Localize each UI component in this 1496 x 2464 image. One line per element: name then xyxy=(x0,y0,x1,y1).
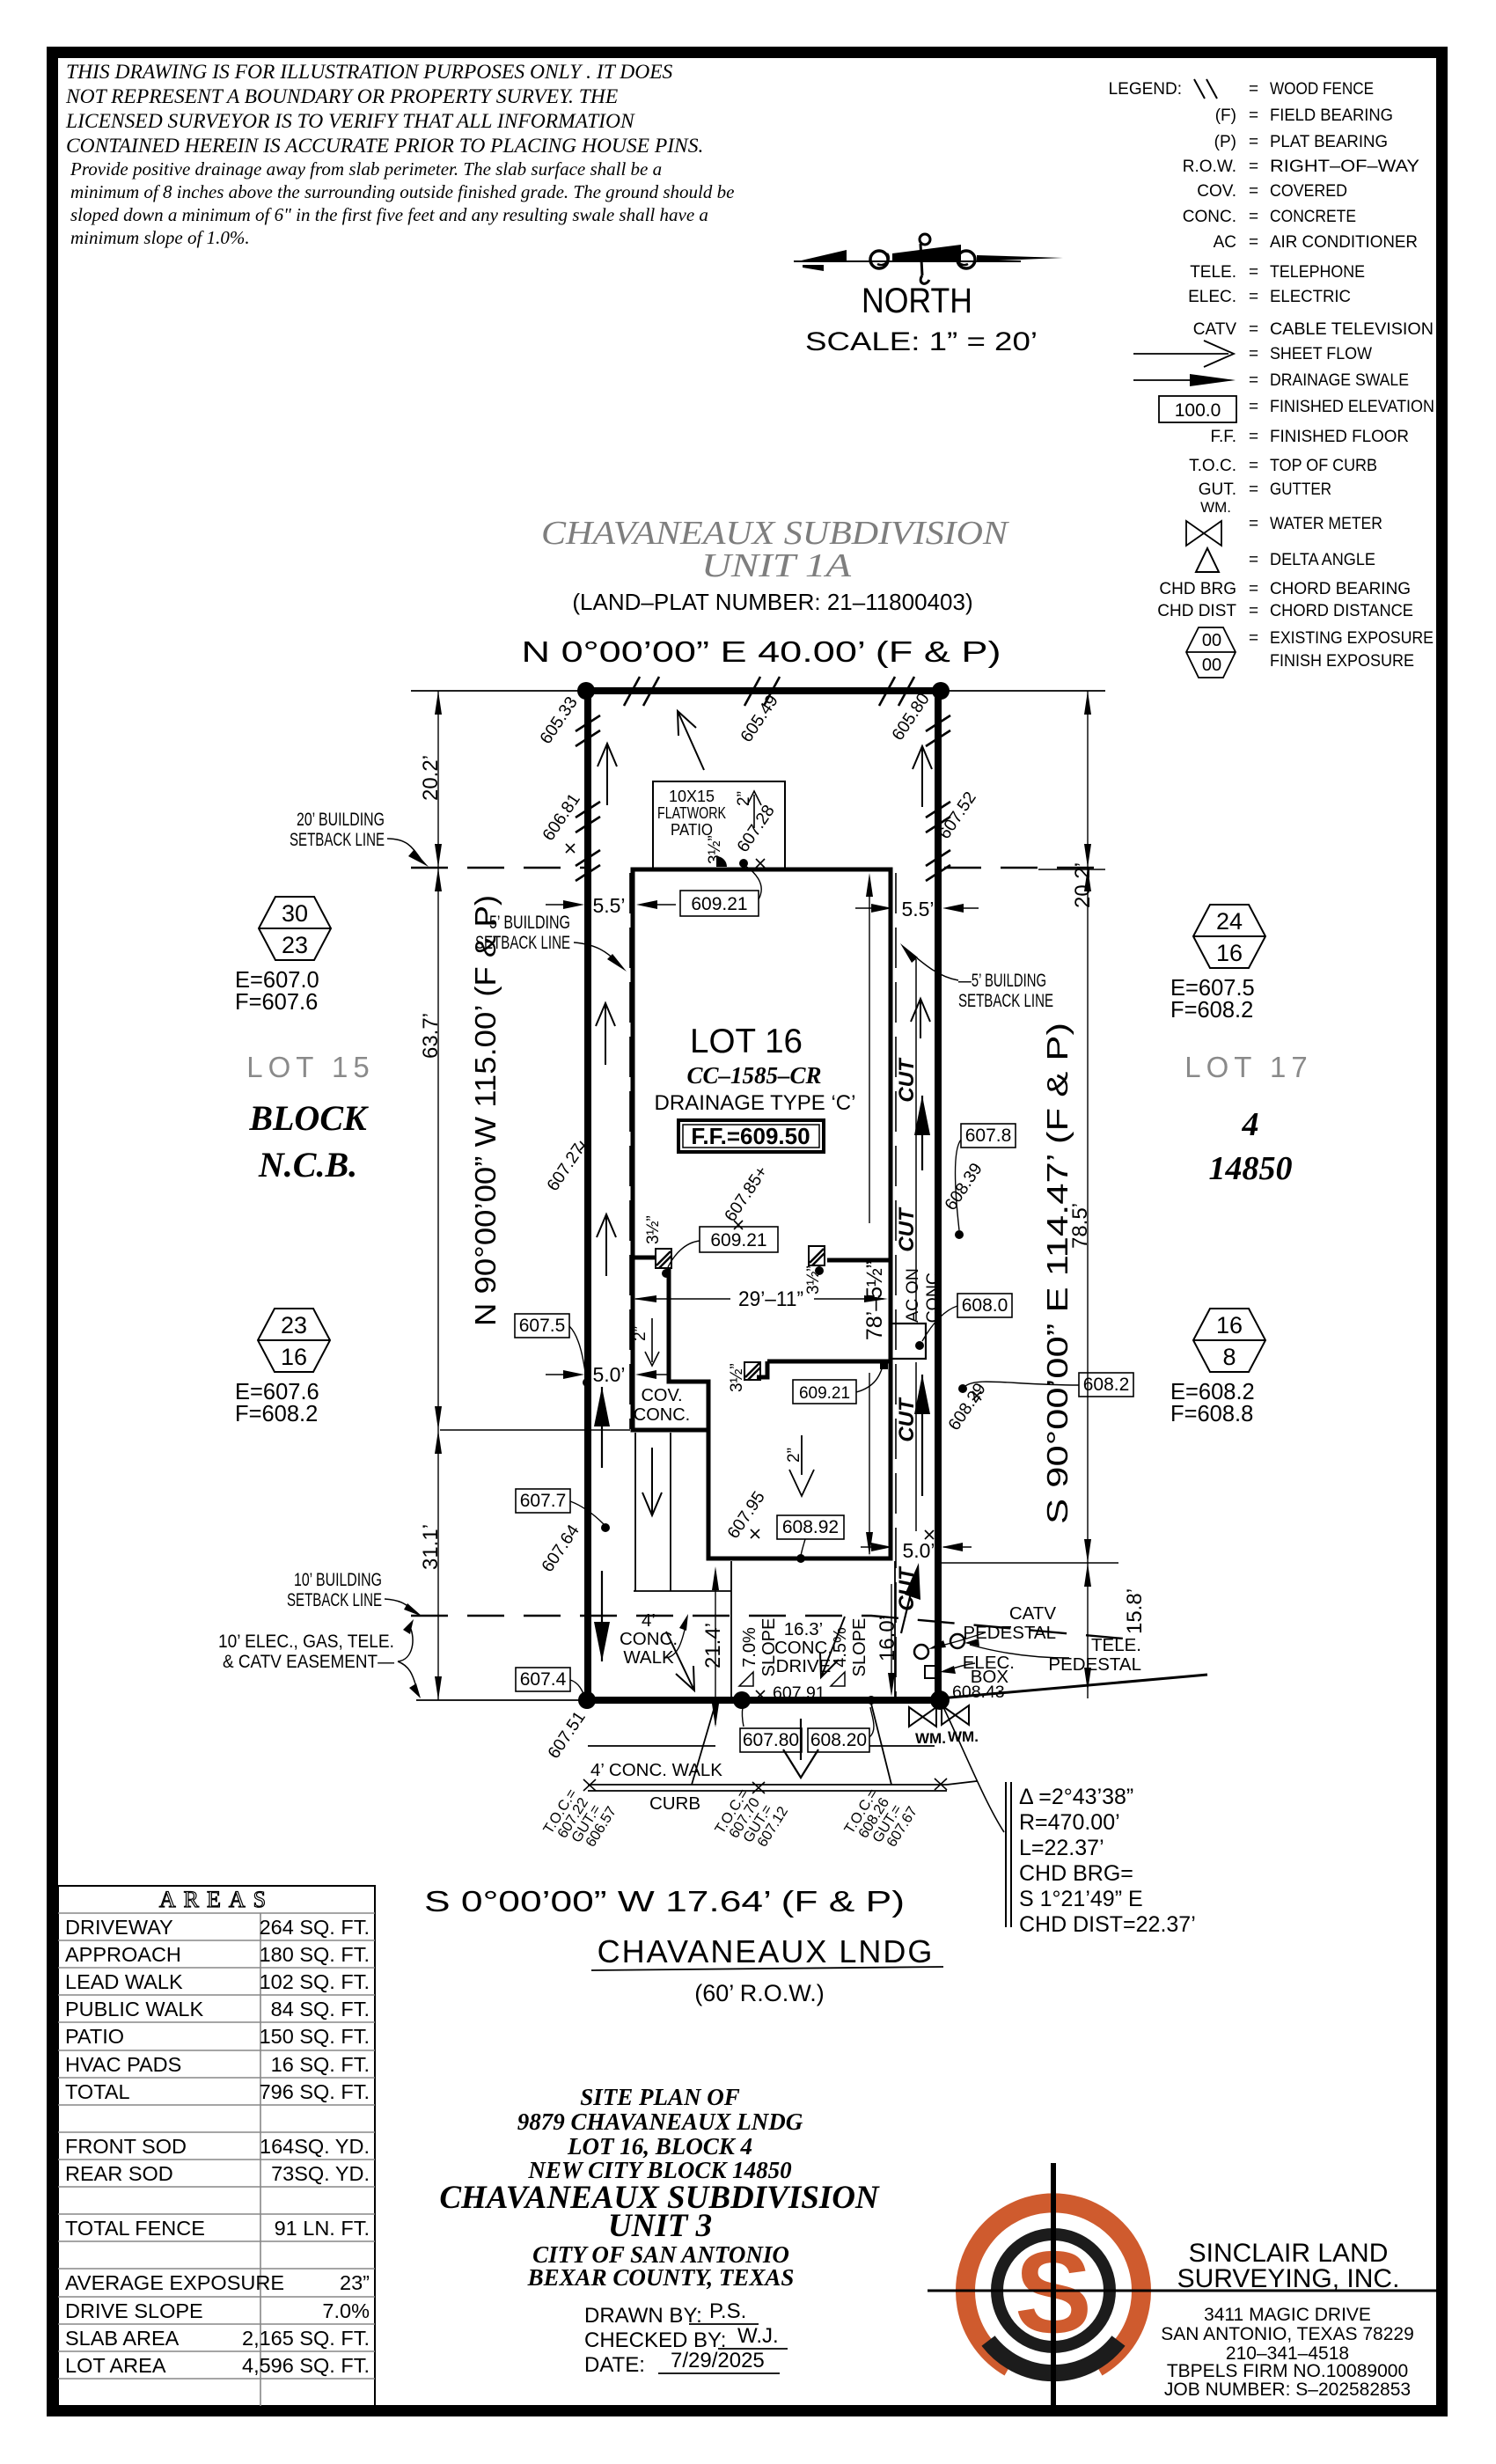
svg-text:=: = xyxy=(1249,580,1258,598)
svg-text:SLOPE: SLOPE xyxy=(850,1618,869,1677)
svg-text:84 SQ. FT.: 84 SQ. FT. xyxy=(271,1998,370,2020)
svg-text:CONC.: CONC. xyxy=(923,1268,942,1324)
svg-text:N 90°00’00” W 115.00’ (F &: N 90°00’00” W 115.00’ (F & P) xyxy=(469,895,502,1326)
svg-text:10X15: 10X15 xyxy=(669,788,715,805)
svg-text:8: 8 xyxy=(1222,1344,1236,1370)
svg-text:sloped down a minimum of 6" in: sloped down a minimum of 6" in the first… xyxy=(70,204,708,225)
svg-text:CABLE TELEVISION: CABLE TELEVISION xyxy=(1270,320,1434,339)
svg-text:CHD BRG: CHD BRG xyxy=(1159,580,1236,598)
svg-text:FLATWORK: FLATWORK xyxy=(657,804,726,822)
svg-text:CONC.: CONC. xyxy=(1183,208,1236,226)
svg-text:23”: 23” xyxy=(340,2271,370,2294)
svg-text:REAR SOD: REAR SOD xyxy=(65,2162,173,2185)
svg-text:PLAT BEARING: PLAT BEARING xyxy=(1270,133,1388,151)
svg-text:=: = xyxy=(1249,158,1258,176)
svg-text:WOOD FENCE: WOOD FENCE xyxy=(1270,80,1374,99)
svg-text:=: = xyxy=(1249,428,1258,446)
svg-text:LEAD WALK: LEAD WALK xyxy=(65,1970,183,1993)
svg-text:DATE:: DATE: xyxy=(584,2353,645,2377)
svg-text:16: 16 xyxy=(1216,940,1243,966)
svg-text:4’: 4’ xyxy=(642,1610,656,1631)
svg-text:LOT 15: LOT 15 xyxy=(246,1051,374,1083)
svg-text:30: 30 xyxy=(282,900,308,927)
svg-text:5.0’: 5.0’ xyxy=(592,1363,625,1386)
svg-text:N.C.B.: N.C.B. xyxy=(258,1145,357,1184)
svg-text:2”: 2” xyxy=(631,1326,649,1341)
svg-text:SETBACK LINE: SETBACK LINE xyxy=(290,829,385,850)
svg-text:Δ =2°43’38”: Δ =2°43’38” xyxy=(1019,1785,1133,1809)
svg-text:DRAINAGE SWALE: DRAINAGE SWALE xyxy=(1270,371,1409,390)
svg-text:150 SQ. FT.: 150 SQ. FT. xyxy=(260,2025,370,2048)
svg-text:CHAVANEAUX SUBDIVISION: CHAVANEAUX SUBDIVISION xyxy=(541,515,1010,552)
svg-text:F=608.8: F=608.8 xyxy=(1170,1402,1253,1426)
svg-text:=: = xyxy=(1249,263,1258,282)
svg-text:TELE.: TELE. xyxy=(1091,1635,1141,1655)
svg-text:LOT 17: LOT 17 xyxy=(1184,1051,1312,1083)
svg-text:T.O.C.: T.O.C. xyxy=(1189,457,1236,475)
svg-text:F=608.2: F=608.2 xyxy=(1170,998,1253,1023)
svg-text:UNIT 1A: UNIT 1A xyxy=(701,547,852,584)
svg-text:15.8’: 15.8’ xyxy=(1123,1588,1147,1634)
svg-text:DELTA ANGLE: DELTA ANGLE xyxy=(1270,551,1375,569)
svg-text:=: = xyxy=(1249,371,1258,390)
svg-text:BOX: BOX xyxy=(971,1667,1009,1687)
svg-text:3½”: 3½” xyxy=(644,1215,663,1244)
svg-text:DRIVEWAY: DRIVEWAY xyxy=(65,1916,173,1939)
svg-text:16: 16 xyxy=(281,1344,307,1370)
svg-text:GUTTER: GUTTER xyxy=(1270,480,1331,499)
svg-text:R=470.00’: R=470.00’ xyxy=(1019,1810,1120,1835)
svg-text:CATV: CATV xyxy=(1193,320,1237,339)
svg-text:CONC.: CONC. xyxy=(620,1629,678,1649)
svg-text:SURVEYING, INC.: SURVEYING, INC. xyxy=(1177,2264,1400,2293)
svg-text:607.4: 607.4 xyxy=(520,1669,567,1690)
svg-text:UNIT 3: UNIT 3 xyxy=(608,2208,712,2244)
svg-text:COV.: COV. xyxy=(1197,182,1236,201)
svg-text:608.20: 608.20 xyxy=(810,1730,867,1750)
svg-text:=: = xyxy=(1249,480,1258,499)
svg-text:100.0: 100.0 xyxy=(1175,400,1221,421)
svg-text:102 SQ. FT.: 102 SQ. FT. xyxy=(260,1970,370,1993)
svg-text:2,165 SQ. FT.: 2,165 SQ. FT. xyxy=(242,2327,370,2350)
svg-text:73SQ. YD.: 73SQ. YD. xyxy=(271,2162,370,2185)
svg-text:W.J.: W.J. xyxy=(737,2324,779,2348)
svg-text:Provide positive drainage away: Provide positive drainage away from slab… xyxy=(70,158,662,180)
svg-text:3411 MAGIC DRIVE: 3411 MAGIC DRIVE xyxy=(1204,2305,1371,2325)
svg-text:LOT 16: LOT 16 xyxy=(690,1023,803,1060)
svg-text:=: = xyxy=(1249,133,1258,151)
svg-text:AC ON: AC ON xyxy=(903,1268,922,1323)
svg-text:5’ BUILDING: 5’ BUILDING xyxy=(489,912,570,933)
svg-text:L=22.37’: L=22.37’ xyxy=(1019,1836,1104,1860)
svg-text:SHEET FLOW: SHEET FLOW xyxy=(1270,345,1372,363)
svg-text:NOT REPRESENT A BOUNDARY OR PR: NOT REPRESENT A BOUNDARY OR PROPERTY SUR… xyxy=(65,85,618,108)
svg-text:F=607.6: F=607.6 xyxy=(235,990,318,1015)
svg-text:AVERAGE EXPOSURE: AVERAGE EXPOSURE xyxy=(65,2271,284,2294)
svg-text:COVERED: COVERED xyxy=(1270,182,1347,201)
svg-text:=: = xyxy=(1249,208,1258,226)
svg-text:16: 16 xyxy=(1216,1312,1243,1338)
svg-text:HVAC PADS: HVAC PADS xyxy=(65,2053,181,2076)
svg-text:ELEC.: ELEC. xyxy=(1188,288,1236,306)
svg-text:CONCRETE: CONCRETE xyxy=(1270,208,1356,226)
svg-text:16 SQ. FT.: 16 SQ. FT. xyxy=(271,2053,370,2076)
svg-text:20.2’: 20.2’ xyxy=(1071,862,1095,908)
svg-text:607.7: 607.7 xyxy=(520,1491,567,1511)
svg-text:7/29/2025: 7/29/2025 xyxy=(671,2349,765,2372)
svg-text:DRAINAGE TYPE ‘C’: DRAINAGE TYPE ‘C’ xyxy=(655,1091,856,1115)
svg-text:78’–5½”: 78’–5½” xyxy=(862,1261,887,1340)
svg-text:THIS DRAWING IS FOR ILLUSTRATI: THIS DRAWING IS FOR ILLUSTRATION PURPOSE… xyxy=(66,61,673,84)
svg-text:WM.: WM. xyxy=(1200,499,1231,516)
svg-text:minimum of 8 inches above the: minimum of 8 inches above the surroundin… xyxy=(70,181,734,202)
svg-text:DRAWN BY:: DRAWN BY: xyxy=(584,2304,702,2328)
svg-text:00: 00 xyxy=(1202,656,1221,675)
svg-text:=: = xyxy=(1249,106,1258,125)
svg-text:4: 4 xyxy=(1242,1106,1259,1143)
svg-text:=: = xyxy=(1249,320,1258,339)
svg-text:N 0°00’00” E 40.00’ (F & P: N 0°00’00” E 40.00’ (F & P) xyxy=(522,635,1001,668)
svg-text:BLOCK: BLOCK xyxy=(248,1098,369,1138)
svg-text:SETBACK LINE: SETBACK LINE xyxy=(287,1589,382,1610)
svg-text:E=607.0: E=607.0 xyxy=(235,968,319,993)
svg-text:AIR CONDITIONER: AIR CONDITIONER xyxy=(1270,233,1418,252)
svg-text:=: = xyxy=(1249,629,1258,648)
svg-text:E=607.6: E=607.6 xyxy=(235,1380,319,1404)
svg-text:3½”: 3½” xyxy=(804,1265,823,1294)
svg-text:CHD DIST: CHD DIST xyxy=(1157,602,1236,620)
svg-text:CATV: CATV xyxy=(1009,1603,1056,1624)
svg-text:609.21: 609.21 xyxy=(691,894,747,914)
svg-text:JOB NUMBER: S–202582853: JOB NUMBER: S–202582853 xyxy=(1164,2380,1411,2400)
svg-text:7.0%: 7.0% xyxy=(322,2299,370,2322)
svg-text:CHORD BEARING: CHORD BEARING xyxy=(1270,580,1411,598)
svg-text:R.O.W.: R.O.W. xyxy=(1183,158,1236,176)
svg-text:29’–11”: 29’–11” xyxy=(738,1287,803,1311)
svg-text:=: = xyxy=(1249,515,1258,533)
svg-text:=: = xyxy=(1249,602,1258,620)
svg-text:23: 23 xyxy=(281,1312,307,1338)
svg-text:(P): (P) xyxy=(1214,133,1236,151)
svg-text:CONC.: CONC. xyxy=(634,1405,690,1425)
svg-text:CUT: CUT xyxy=(895,1206,919,1252)
svg-text:2”: 2” xyxy=(785,1448,803,1463)
svg-text:14850: 14850 xyxy=(1209,1150,1293,1187)
svg-text:FINISHED FLOOR: FINISHED FLOOR xyxy=(1270,428,1409,446)
svg-text:16.0’: 16.0’ xyxy=(876,1616,899,1661)
svg-text:LICENSED SURVEYOR IS TO VERIFY: LICENSED SURVEYOR IS TO VERIFY THAT ALL … xyxy=(65,110,635,133)
svg-text:3½”: 3½” xyxy=(706,835,724,864)
svg-text:& CATV EASEMENT—: & CATV EASEMENT— xyxy=(223,1651,394,1672)
svg-text:EXISTING EXPOSURE: EXISTING EXPOSURE xyxy=(1270,629,1434,648)
svg-text:S 90°00’00” E 114.47’ (F &: S 90°00’00” E 114.47’ (F & P) xyxy=(1041,1023,1074,1524)
svg-text:00: 00 xyxy=(1202,631,1221,650)
svg-text:SCALE: 1” = 20’: SCALE: 1” = 20’ xyxy=(805,327,1038,356)
svg-text:AC: AC xyxy=(1214,233,1236,252)
svg-text:SETBACK LINE: SETBACK LINE xyxy=(958,990,1053,1011)
svg-text:(60’ R.O.W.): (60’ R.O.W.) xyxy=(694,1980,825,2006)
svg-text:BEXAR COUNTY, TEXAS: BEXAR COUNTY, TEXAS xyxy=(527,2264,795,2291)
svg-text:CONC.: CONC. xyxy=(774,1638,832,1658)
svg-text:ELECTRIC: ELECTRIC xyxy=(1270,288,1351,306)
svg-text:5.5’: 5.5’ xyxy=(901,898,934,920)
svg-text:608.92: 608.92 xyxy=(782,1517,839,1537)
svg-text:TOTAL FENCE: TOTAL FENCE xyxy=(65,2217,205,2240)
svg-text:S 0°00’00” W 17.64’ (F & P: S 0°00’00” W 17.64’ (F & P) xyxy=(424,1885,905,1918)
svg-text:DRIVE: DRIVE xyxy=(776,1656,832,1676)
svg-text:TBPELS FIRM NO.10089000: TBPELS FIRM NO.10089000 xyxy=(1167,2361,1408,2381)
svg-text:FINISH EXPOSURE: FINISH EXPOSURE xyxy=(1270,652,1414,671)
svg-text:=: = xyxy=(1249,233,1258,252)
svg-text:LOT 16, BLOCK 4: LOT 16, BLOCK 4 xyxy=(567,2133,752,2160)
svg-text:=: = xyxy=(1249,288,1258,306)
svg-text:264 SQ. FT.: 264 SQ. FT. xyxy=(260,1916,370,1939)
svg-text:PUBLIC WALK: PUBLIC WALK xyxy=(65,1998,203,2020)
svg-text:24: 24 xyxy=(1216,908,1243,935)
svg-text:164SQ. YD.: 164SQ. YD. xyxy=(260,2135,370,2158)
svg-text:91 LN. FT.: 91 LN. FT. xyxy=(275,2217,370,2240)
svg-text:—5’ BUILDING: —5’ BUILDING xyxy=(958,970,1046,991)
svg-text:F.F.: F.F. xyxy=(1210,428,1236,446)
svg-text:PATIO: PATIO xyxy=(65,2025,124,2048)
svg-text:GUT.: GUT. xyxy=(1199,480,1236,499)
svg-text:CHAVANEAUX LNDG: CHAVANEAUX LNDG xyxy=(598,1933,935,1969)
svg-text:SITE PLAN OF: SITE PLAN OF xyxy=(580,2084,740,2110)
svg-text:SETBACK LINE: SETBACK LINE xyxy=(475,932,570,953)
svg-text:SLAB AREA: SLAB AREA xyxy=(65,2327,180,2350)
svg-text:CUT: CUT xyxy=(895,1397,919,1442)
svg-text:180 SQ. FT.: 180 SQ. FT. xyxy=(260,1943,370,1966)
svg-text:10’ ELEC., GAS, TELE.: 10’ ELEC., GAS, TELE. xyxy=(218,1631,394,1652)
svg-text:P.S.: P.S. xyxy=(709,2299,746,2323)
svg-text:609.21: 609.21 xyxy=(799,1384,850,1403)
svg-text:FRONT SOD: FRONT SOD xyxy=(65,2135,187,2158)
svg-text:607.5: 607.5 xyxy=(519,1316,566,1336)
svg-text:607.91: 607.91 xyxy=(773,1683,825,1703)
svg-text:APPROACH: APPROACH xyxy=(65,1943,181,1966)
svg-text:WM.: WM. xyxy=(948,1728,979,1745)
svg-text:CUT: CUT xyxy=(895,1566,919,1611)
svg-text:(F): (F) xyxy=(1215,106,1236,125)
svg-text:20’ BUILDING: 20’ BUILDING xyxy=(297,809,385,830)
svg-text:607.8: 607.8 xyxy=(965,1126,1012,1146)
svg-text:=: = xyxy=(1249,398,1258,416)
svg-text:AREAS: AREAS xyxy=(159,1887,274,1912)
svg-text:=: = xyxy=(1249,457,1258,475)
svg-text:4,596 SQ. FT.: 4,596 SQ. FT. xyxy=(242,2354,370,2377)
svg-text:RIGHT–OF–WAY: RIGHT–OF–WAY xyxy=(1270,158,1419,176)
svg-text:COV.: COV. xyxy=(641,1386,682,1405)
svg-text:9879 CHAVANEAUX LNDG: 9879 CHAVANEAUX LNDG xyxy=(517,2108,803,2135)
svg-text:minimum slope of 1.0%.: minimum slope of 1.0%. xyxy=(70,227,250,248)
svg-text:DRIVE SLOPE: DRIVE SLOPE xyxy=(65,2299,203,2322)
svg-text:5.5’: 5.5’ xyxy=(592,894,625,917)
svg-text:E=607.5: E=607.5 xyxy=(1170,976,1255,1001)
svg-text:16.3’: 16.3’ xyxy=(784,1619,823,1639)
svg-text:NORTH: NORTH xyxy=(862,282,972,320)
svg-text:S 1°21’49” E: S 1°21’49” E xyxy=(1019,1887,1143,1911)
svg-text:E=608.2: E=608.2 xyxy=(1170,1380,1255,1404)
svg-text:F=608.2: F=608.2 xyxy=(235,1402,318,1426)
svg-text:(LAND–PLAT NUMBER: 21–1180040: (LAND–PLAT NUMBER: 21–11800403) xyxy=(572,589,972,615)
svg-text:=: = xyxy=(1249,182,1258,201)
svg-text:CONTAINED HEREIN IS ACCURATE P: CONTAINED HEREIN IS ACCURATE PRIOR TO PL… xyxy=(66,135,703,158)
svg-text:2”: 2” xyxy=(735,791,753,806)
svg-text:FINISHED ELEVATION: FINISHED ELEVATION xyxy=(1270,398,1434,416)
svg-text:21.4’: 21.4’ xyxy=(701,1623,725,1668)
svg-text:4.5%: 4.5% xyxy=(831,1627,850,1668)
svg-text:608.2: 608.2 xyxy=(1083,1375,1130,1395)
svg-text:LEGEND:: LEGEND: xyxy=(1109,80,1182,99)
svg-text:WM.: WM. xyxy=(915,1730,946,1747)
svg-text:=: = xyxy=(1249,551,1258,569)
svg-text:CHD DIST=22.37’: CHD DIST=22.37’ xyxy=(1019,1912,1196,1937)
svg-text:LOT AREA: LOT AREA xyxy=(65,2354,166,2377)
svg-text:4’ CONC. WALK: 4’ CONC. WALK xyxy=(590,1760,722,1780)
svg-text:CHD BRG=: CHD BRG= xyxy=(1019,1861,1133,1886)
svg-text:TOP OF CURB: TOP OF CURB xyxy=(1270,457,1377,475)
svg-text:F.F.=609.50: F.F.=609.50 xyxy=(691,1123,810,1149)
svg-text:TOTAL: TOTAL xyxy=(65,2080,130,2103)
svg-text:31.1’: 31.1’ xyxy=(419,1524,443,1570)
svg-text:5.0’: 5.0’ xyxy=(902,1539,935,1562)
svg-text:609.21: 609.21 xyxy=(710,1230,766,1250)
svg-text:23: 23 xyxy=(282,932,308,958)
svg-text:FIELD BEARING: FIELD BEARING xyxy=(1270,106,1393,125)
svg-text:TELEPHONE: TELEPHONE xyxy=(1270,263,1365,282)
svg-text:CURB: CURB xyxy=(649,1793,700,1814)
svg-text:607.80: 607.80 xyxy=(743,1730,799,1750)
svg-text:10’ BUILDING: 10’ BUILDING xyxy=(294,1569,382,1590)
svg-text:CHORD DISTANCE: CHORD DISTANCE xyxy=(1270,602,1413,620)
svg-text:796 SQ. FT.: 796 SQ. FT. xyxy=(260,2080,370,2103)
svg-text:CC–1585–CR: CC–1585–CR xyxy=(686,1062,821,1089)
svg-text:7.0%: 7.0% xyxy=(740,1627,759,1668)
svg-text:20.2’: 20.2’ xyxy=(419,755,443,801)
svg-text:SAN ANTONIO, TEXAS 78229: SAN ANTONIO, TEXAS 78229 xyxy=(1161,2324,1414,2344)
svg-text:3½”: 3½” xyxy=(728,1363,746,1392)
svg-text:608.0: 608.0 xyxy=(962,1295,1008,1316)
svg-text:WATER METER: WATER METER xyxy=(1270,515,1382,533)
svg-text:TELE.: TELE. xyxy=(1190,263,1236,282)
svg-text:=: = xyxy=(1249,80,1258,99)
svg-text:=: = xyxy=(1249,345,1258,363)
svg-text:63.7’: 63.7’ xyxy=(419,1013,443,1059)
svg-text:CUT: CUT xyxy=(895,1057,919,1103)
